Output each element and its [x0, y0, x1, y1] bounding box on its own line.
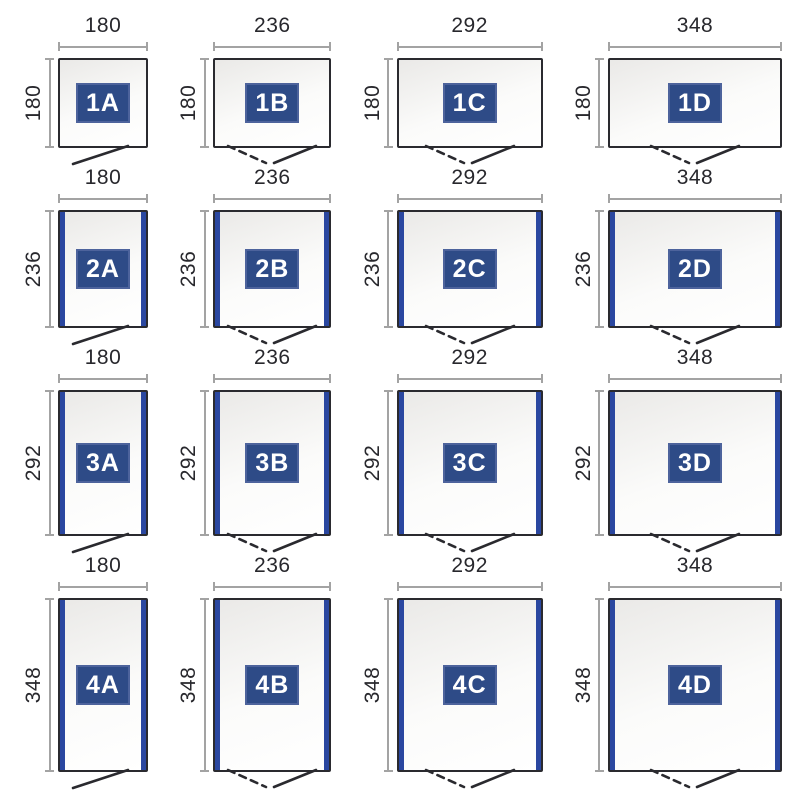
- plan-body: 180 1A: [18, 58, 148, 148]
- plan-cell: 292 292 3C: [357, 342, 543, 550]
- width-dimension-line: [213, 582, 331, 591]
- side-panel-left: [399, 600, 404, 770]
- height-dimension-label: 292: [22, 441, 46, 485]
- plan-cell: 348 180 1D: [568, 10, 782, 162]
- width-dimension-line: [608, 582, 782, 591]
- double-door-swing-icon: [635, 768, 755, 792]
- double-door-swing-icon: [410, 768, 530, 792]
- side-panel-left: [60, 392, 65, 534]
- single-door-swing-icon: [43, 768, 163, 792]
- side-panel-right: [141, 392, 146, 534]
- height-dimension: 348: [173, 598, 213, 772]
- width-dimension: 292: [397, 162, 543, 210]
- plan-box: 4B: [213, 598, 331, 772]
- height-dimension-line: [45, 598, 54, 772]
- height-dimension: 292: [18, 390, 58, 536]
- width-dimension: 180: [58, 162, 148, 210]
- width-dimension-label: 348: [608, 14, 782, 38]
- height-dimension: 180: [18, 58, 58, 148]
- height-dimension-line: [45, 58, 54, 148]
- plan-label-badge: 2C: [443, 249, 497, 289]
- side-panel-left: [215, 392, 220, 534]
- side-panel-left: [610, 392, 615, 534]
- width-dimension-line: [58, 374, 148, 383]
- width-dimension: 348: [608, 550, 782, 598]
- width-dimension-label: 236: [213, 554, 331, 578]
- shed-size-diagram: 180 180 1A 236 180: [0, 0, 800, 800]
- height-dimension: 180: [568, 58, 608, 148]
- plan-label-badge: 2A: [76, 249, 130, 289]
- side-panel-right: [141, 600, 146, 770]
- width-dimension: 348: [608, 10, 782, 58]
- plan-label-badge: 2D: [668, 249, 722, 289]
- plan-body: 348 4B: [173, 598, 331, 772]
- plan-label-badge: 4A: [76, 665, 130, 705]
- plan-box: 3C: [397, 390, 543, 536]
- width-dimension-line: [608, 42, 782, 51]
- height-dimension-line: [595, 210, 604, 328]
- plan-label-badge: 1B: [245, 83, 299, 123]
- width-dimension: 236: [213, 550, 331, 598]
- plan-cell: 292 180 1C: [357, 10, 543, 162]
- plan-cell: 236 180 1B: [173, 10, 331, 162]
- height-dimension-label: 348: [361, 663, 385, 707]
- height-dimension: 292: [173, 390, 213, 536]
- plan-box: 1D: [608, 58, 782, 148]
- side-panel-left: [610, 600, 615, 770]
- height-dimension-label: 348: [572, 663, 596, 707]
- plan-label-badge: 3C: [443, 443, 497, 483]
- plan-cell: 348 236 2D: [568, 162, 782, 342]
- side-panel-right: [775, 392, 780, 534]
- width-dimension-label: 348: [608, 346, 782, 370]
- plan-label-badge: 3A: [76, 443, 130, 483]
- width-dimension-label: 180: [58, 14, 148, 38]
- height-dimension-label: 180: [572, 81, 596, 125]
- side-panel-right: [324, 392, 329, 534]
- width-dimension-label: 348: [608, 166, 782, 190]
- plan-label-badge: 2B: [245, 249, 299, 289]
- height-dimension-label: 236: [177, 247, 201, 291]
- height-dimension: 236: [568, 210, 608, 328]
- width-dimension-line: [608, 194, 782, 203]
- plan-body: 348 4D: [568, 598, 782, 772]
- side-panel-left: [399, 392, 404, 534]
- height-dimension-label: 236: [361, 247, 385, 291]
- plan-box: 4A: [58, 598, 148, 772]
- height-dimension-line: [200, 210, 209, 328]
- plan-label-badge: 4D: [668, 665, 722, 705]
- height-dimension-line: [384, 390, 393, 536]
- side-panel-left: [215, 212, 220, 326]
- side-panel-right: [536, 212, 541, 326]
- height-dimension: 348: [568, 598, 608, 772]
- width-dimension-line: [213, 42, 331, 51]
- plan-body: 292 3B: [173, 390, 331, 536]
- plan-body: 236 2B: [173, 210, 331, 328]
- double-door-swing-icon: [212, 768, 332, 792]
- height-dimension-line: [200, 598, 209, 772]
- height-dimension: 292: [568, 390, 608, 536]
- plan-cell: 348 292 3D: [568, 342, 782, 550]
- height-dimension-label: 292: [572, 441, 596, 485]
- height-dimension-label: 348: [22, 663, 46, 707]
- side-panel-right: [324, 212, 329, 326]
- side-panel-right: [324, 600, 329, 770]
- width-dimension-line: [608, 374, 782, 383]
- height-dimension: 236: [357, 210, 397, 328]
- height-dimension-label: 292: [361, 441, 385, 485]
- plan-box: 1A: [58, 58, 148, 148]
- plan-box: 3A: [58, 390, 148, 536]
- height-dimension: 236: [173, 210, 213, 328]
- height-dimension-label: 180: [361, 81, 385, 125]
- width-dimension-label: 292: [397, 554, 543, 578]
- height-dimension: 180: [173, 58, 213, 148]
- plan-box: 4C: [397, 598, 543, 772]
- height-dimension-label: 236: [22, 247, 46, 291]
- width-dimension: 292: [397, 342, 543, 390]
- plan-cell: 180 292 3A: [18, 342, 148, 550]
- plan-label-badge: 1D: [668, 83, 722, 123]
- plan-body: 348 4A: [18, 598, 148, 772]
- width-dimension: 292: [397, 550, 543, 598]
- plan-body: 348 4C: [357, 598, 543, 772]
- height-dimension-line: [45, 210, 54, 328]
- plan-cell: 236 292 3B: [173, 342, 331, 550]
- height-dimension-line: [45, 390, 54, 536]
- width-dimension-line: [213, 194, 331, 203]
- height-dimension-line: [200, 58, 209, 148]
- width-dimension: 180: [58, 550, 148, 598]
- plan-cell: 292 236 2C: [357, 162, 543, 342]
- width-dimension-line: [58, 42, 148, 51]
- plan-label-badge: 1A: [76, 83, 130, 123]
- plan-box: 3D: [608, 390, 782, 536]
- width-dimension-line: [397, 42, 543, 51]
- height-dimension-label: 236: [572, 247, 596, 291]
- height-dimension-line: [384, 58, 393, 148]
- plan-grid: 180 180 1A 236 180: [18, 10, 782, 786]
- width-dimension-label: 180: [58, 166, 148, 190]
- height-dimension: 292: [357, 390, 397, 536]
- plan-cell: 180 348 4A: [18, 550, 148, 786]
- height-dimension-label: 348: [177, 663, 201, 707]
- plan-label-badge: 3D: [668, 443, 722, 483]
- plan-cell: 236 348 4B: [173, 550, 331, 786]
- side-panel-left: [60, 212, 65, 326]
- height-dimension-label: 180: [177, 81, 201, 125]
- plan-box: 4D: [608, 598, 782, 772]
- width-dimension-line: [213, 374, 331, 383]
- side-panel-right: [536, 600, 541, 770]
- width-dimension-label: 180: [58, 554, 148, 578]
- width-dimension: 348: [608, 342, 782, 390]
- plan-cell: 236 236 2B: [173, 162, 331, 342]
- width-dimension-line: [397, 374, 543, 383]
- plan-body: 292 3D: [568, 390, 782, 536]
- plan-box: 1B: [213, 58, 331, 148]
- plan-label-badge: 1C: [443, 83, 497, 123]
- plan-body: 180 1B: [173, 58, 331, 148]
- width-dimension-label: 236: [213, 346, 331, 370]
- width-dimension-label: 236: [213, 14, 331, 38]
- side-panel-left: [60, 600, 65, 770]
- side-panel-left: [215, 600, 220, 770]
- width-dimension-label: 348: [608, 554, 782, 578]
- plan-box: 3B: [213, 390, 331, 536]
- side-panel-right: [775, 212, 780, 326]
- width-dimension: 348: [608, 162, 782, 210]
- plan-label-badge: 4C: [443, 665, 497, 705]
- width-dimension-label: 292: [397, 14, 543, 38]
- height-dimension: 236: [18, 210, 58, 328]
- plan-box: 2C: [397, 210, 543, 328]
- side-panel-right: [141, 212, 146, 326]
- side-panel-right: [536, 392, 541, 534]
- plan-label-badge: 4B: [245, 665, 299, 705]
- plan-cell: 180 236 2A: [18, 162, 148, 342]
- width-dimension-line: [397, 582, 543, 591]
- height-dimension-line: [595, 390, 604, 536]
- plan-body: 292 3C: [357, 390, 543, 536]
- plan-label-badge: 3B: [245, 443, 299, 483]
- plan-box: 2D: [608, 210, 782, 328]
- plan-body: 236 2C: [357, 210, 543, 328]
- height-dimension-label: 292: [177, 441, 201, 485]
- width-dimension: 236: [213, 342, 331, 390]
- side-panel-right: [775, 600, 780, 770]
- width-dimension: 180: [58, 342, 148, 390]
- side-panel-left: [610, 212, 615, 326]
- width-dimension: 236: [213, 162, 331, 210]
- plan-box: 1C: [397, 58, 543, 148]
- height-dimension-line: [200, 390, 209, 536]
- plan-body: 236 2D: [568, 210, 782, 328]
- width-dimension-line: [397, 194, 543, 203]
- plan-cell: 180 180 1A: [18, 10, 148, 162]
- width-dimension: 180: [58, 10, 148, 58]
- side-panel-left: [399, 212, 404, 326]
- width-dimension-label: 292: [397, 166, 543, 190]
- plan-body: 180 1D: [568, 58, 782, 148]
- width-dimension: 236: [213, 10, 331, 58]
- plan-cell: 348 348 4D: [568, 550, 782, 786]
- plan-body: 236 2A: [18, 210, 148, 328]
- plan-body: 180 1C: [357, 58, 543, 148]
- height-dimension-line: [384, 598, 393, 772]
- height-dimension-label: 180: [22, 81, 46, 125]
- width-dimension-label: 180: [58, 346, 148, 370]
- width-dimension-label: 292: [397, 346, 543, 370]
- width-dimension-line: [58, 582, 148, 591]
- plan-box: 2B: [213, 210, 331, 328]
- height-dimension: 348: [357, 598, 397, 772]
- height-dimension-line: [384, 210, 393, 328]
- height-dimension-line: [595, 598, 604, 772]
- width-dimension-label: 236: [213, 166, 331, 190]
- plan-body: 292 3A: [18, 390, 148, 536]
- width-dimension: 292: [397, 10, 543, 58]
- height-dimension-line: [595, 58, 604, 148]
- plan-cell: 292 348 4C: [357, 550, 543, 786]
- plan-box: 2A: [58, 210, 148, 328]
- width-dimension-line: [58, 194, 148, 203]
- height-dimension: 180: [357, 58, 397, 148]
- height-dimension: 348: [18, 598, 58, 772]
